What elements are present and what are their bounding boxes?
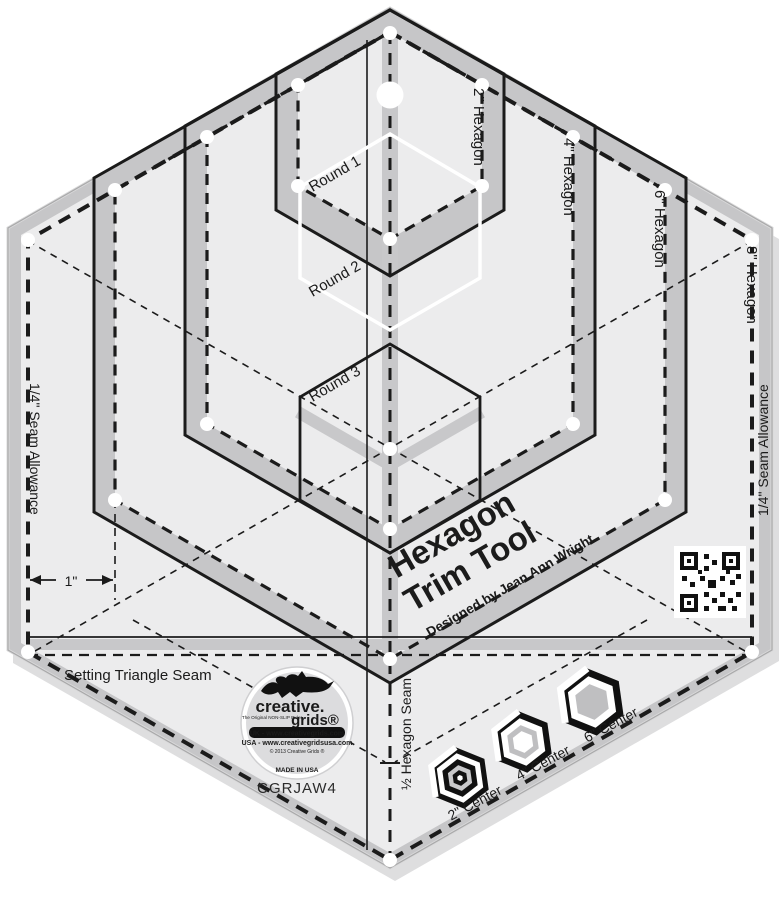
product-sku: CGRJAW4: [257, 780, 337, 797]
qr-code: [674, 546, 746, 618]
seam-allowance-label-left: 1/4" Seam Allowance: [27, 383, 43, 515]
seam-allowance-label-right: 1/4" Seam Allowance: [755, 384, 771, 516]
hanging-hole: [377, 82, 404, 109]
size-label-6in: 6" Hexagon: [651, 190, 668, 268]
brand-copyright: © 2013 Creative Grids ®: [270, 748, 325, 755]
brand-usa-url: USA - www.creativegridsusa.com: [242, 740, 353, 747]
size-label-4in: 4" Hexagon: [560, 138, 577, 216]
size-label-8in: 8" Hexagon: [743, 246, 760, 324]
hexagon-trim-tool-product-image: 1" 2" Hexagon 4" Hexagon 6" Hexagon 8" H…: [0, 0, 781, 900]
brand-name-bottom: grids®: [291, 712, 339, 729]
brand-uk-url: UK - www.creativegrids.com: [250, 731, 344, 738]
ruler-illustration: 1" 2" Hexagon 4" Hexagon 6" Hexagon 8" H…: [0, 0, 781, 900]
made-in-usa-label: MADE IN USA: [276, 767, 319, 774]
size-label-2in: 2" Hexagon: [470, 88, 487, 166]
half-hexagon-seam-label: ½ Hexagon Seam: [398, 678, 414, 790]
one-inch-label: 1": [65, 573, 78, 589]
setting-triangle-label: Setting Triangle Seam: [64, 667, 212, 684]
brand-badge: creative. The Original NON-SLIP Ruler gr…: [241, 667, 353, 779]
